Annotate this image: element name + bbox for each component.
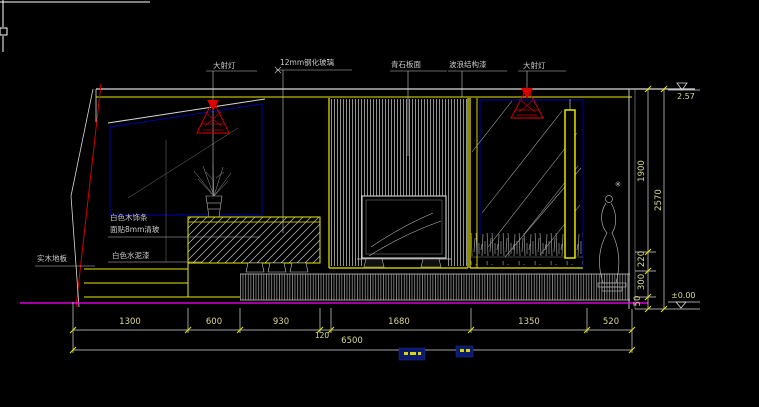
dim-total-6500: 6500 xyxy=(341,337,363,346)
potted-plant xyxy=(194,163,231,217)
television xyxy=(357,196,451,267)
cement-paint-label: 白色水泥漆 xyxy=(112,251,150,260)
wood-trim-label: 白色木饰条 xyxy=(110,213,148,222)
title-stamp-left xyxy=(399,348,425,360)
tv-cabinet xyxy=(188,217,320,272)
light-column xyxy=(565,110,575,258)
dim-50: 50 xyxy=(633,281,643,321)
stone-slab-label: 青石板面 xyxy=(391,60,421,69)
dim-1350: 1350 xyxy=(518,318,540,327)
spotlight-right-label: 大射灯 xyxy=(523,61,546,70)
crosshair-cursor xyxy=(0,0,150,52)
spotlight-right xyxy=(511,88,543,118)
dim-600: 600 xyxy=(206,318,222,327)
ceiling-line xyxy=(96,89,695,97)
right-glass-section xyxy=(470,98,583,268)
steps xyxy=(84,263,240,297)
elevation-drawing xyxy=(0,0,759,407)
dim-1900: 1900 xyxy=(637,151,647,191)
level-floor-value: ±0.00 xyxy=(671,291,696,300)
dim-520: 520 xyxy=(603,318,619,327)
glass-overlay-label: 面贴8mm清玻 xyxy=(110,225,159,234)
cad-canvas[interactable]: 大射灯 12mm钢化玻璃 青石板面 波浪结构漆 大射灯 白色木饰条 面贴8mm清… xyxy=(0,0,759,407)
texture-paint-label: 波浪结构漆 xyxy=(449,60,487,69)
spotlight-left-label: 大射灯 xyxy=(213,61,236,70)
dim-120: 120 xyxy=(315,331,329,340)
dim-1300: 1300 xyxy=(119,318,141,327)
title-stamp-right xyxy=(456,346,473,357)
tempered-glass-label: 12mm钢化玻璃 xyxy=(280,58,334,67)
skirting-board xyxy=(240,274,630,300)
level-marker-floor xyxy=(668,302,700,308)
left-break-line xyxy=(71,84,101,307)
dim-1680: 1680 xyxy=(388,318,410,327)
dim-total-2570: 2570 xyxy=(654,180,664,220)
dim-930: 930 xyxy=(273,318,289,327)
level-ceiling-value: 2.57 xyxy=(677,92,695,101)
wood-floor-label: 实木地板 xyxy=(37,254,67,263)
